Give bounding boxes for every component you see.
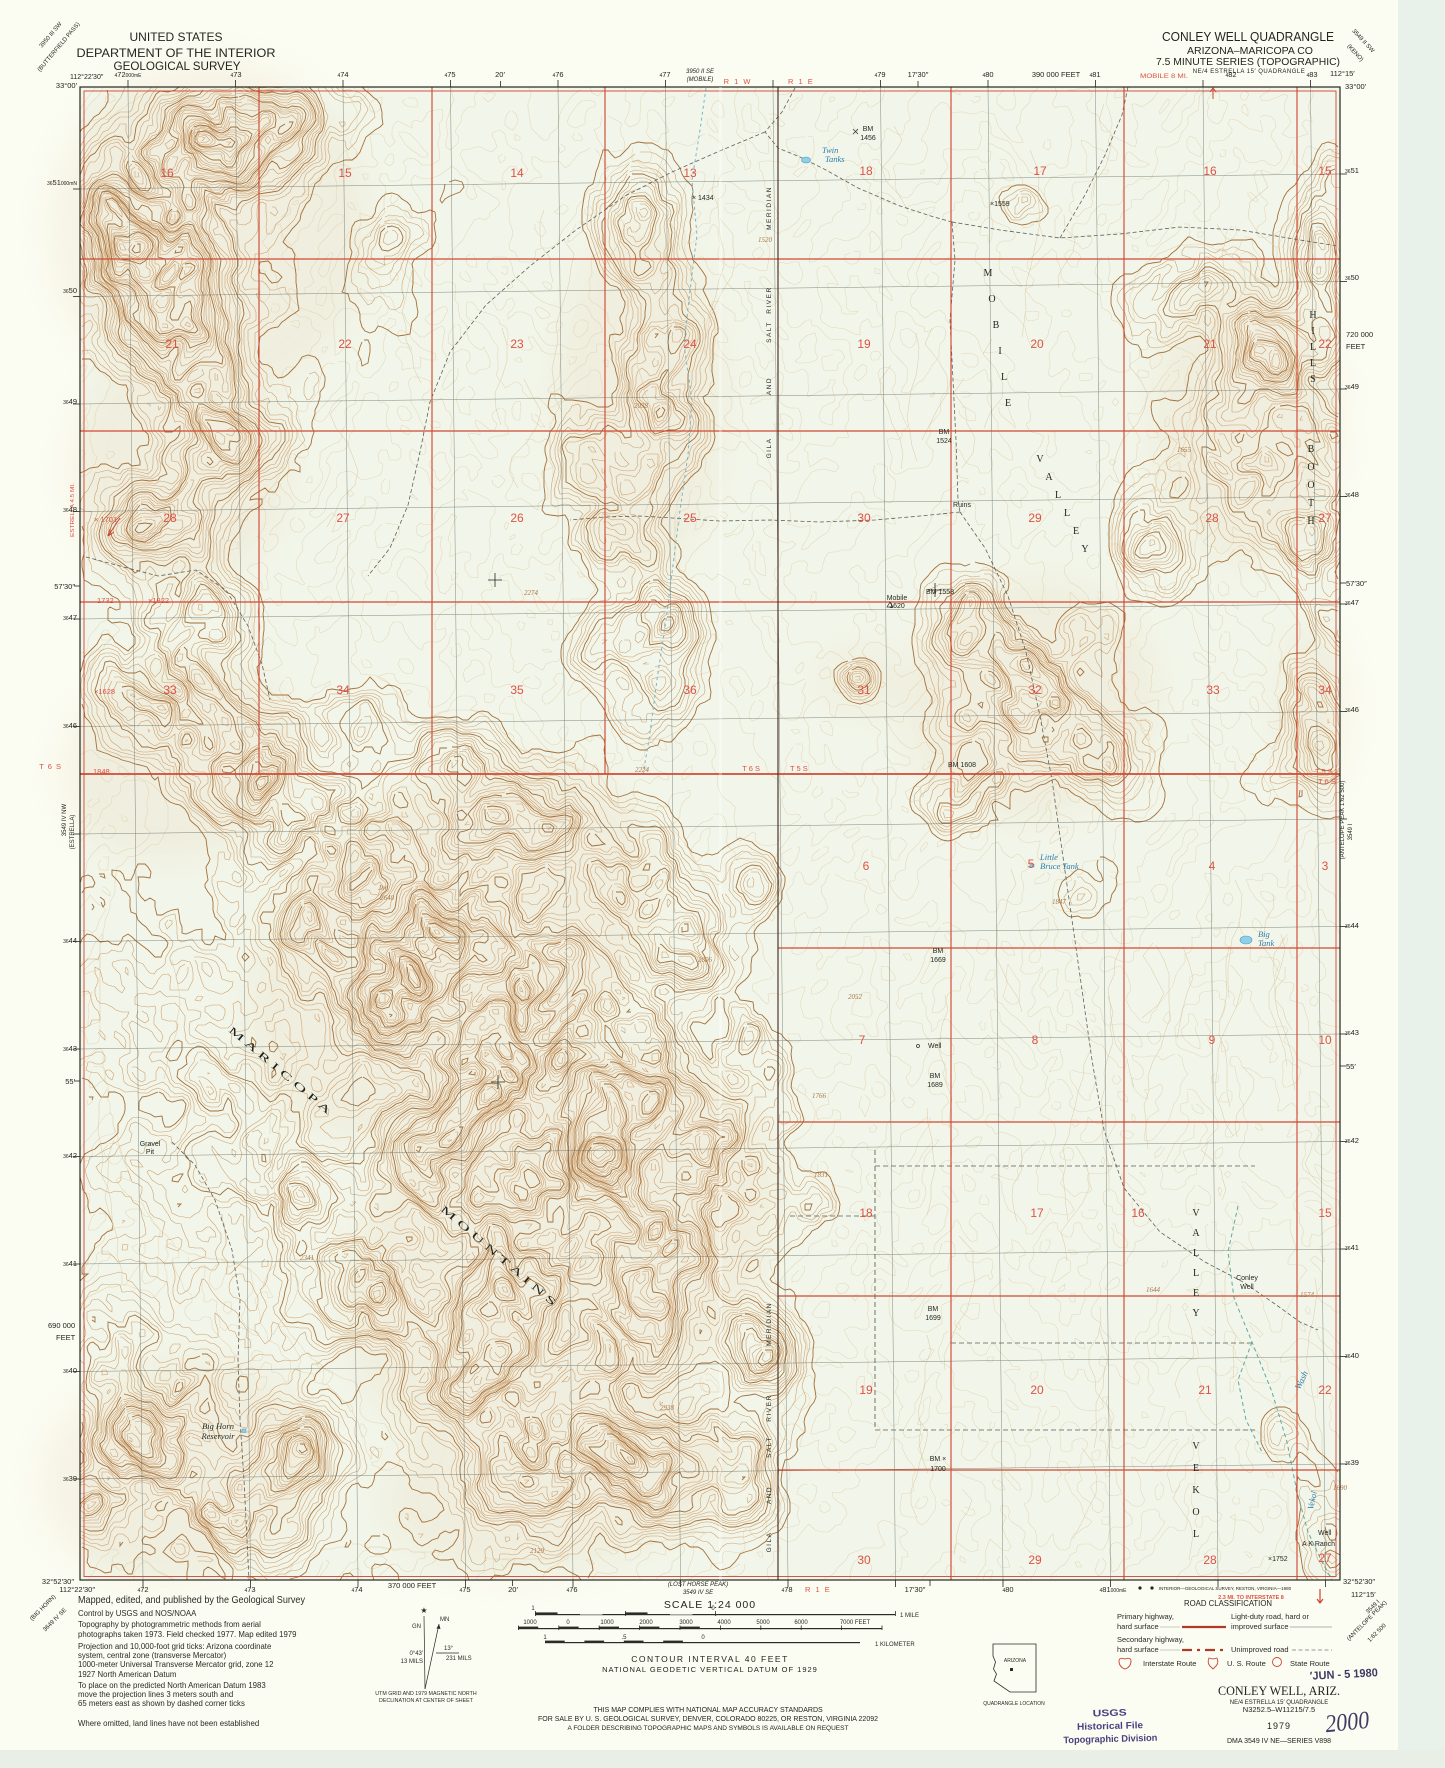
svg-text:32°52′30″: 32°52′30″ bbox=[1343, 1577, 1375, 1586]
svg-text:20: 20 bbox=[1030, 1383, 1044, 1397]
svg-text:24: 24 bbox=[683, 337, 697, 351]
svg-text:U. S. Route: U. S. Route bbox=[1227, 1659, 1266, 1668]
svg-text:M: M bbox=[984, 268, 993, 279]
svg-text:R 1 E: R 1 E bbox=[805, 1585, 831, 1594]
svg-text:SALT: SALT bbox=[766, 1436, 773, 1458]
svg-text:28: 28 bbox=[1205, 511, 1219, 525]
svg-text:5: 5 bbox=[1028, 857, 1035, 871]
svg-text:Reservoir: Reservoir bbox=[200, 1431, 235, 1441]
svg-text:17′30″: 17′30″ bbox=[908, 70, 929, 79]
svg-text:DECLINATION AT CENTER OF SHEET: DECLINATION AT CENTER OF SHEET bbox=[379, 1698, 474, 1704]
svg-text:21: 21 bbox=[165, 337, 179, 351]
svg-text:FOR SALE BY U. S. GEOLOGICAL S: FOR SALE BY U. S. GEOLOGICAL SURVEY, DEN… bbox=[538, 1716, 878, 1723]
svg-text:E: E bbox=[1005, 398, 1011, 409]
svg-text:N3252.5–W11215/7.5: N3252.5–W11215/7.5 bbox=[1243, 1705, 1315, 1714]
svg-text:BM: BM bbox=[928, 1306, 939, 1313]
svg-text:CONTOUR INTERVAL 40 FEET: CONTOUR INTERVAL 40 FEET bbox=[631, 1654, 789, 1664]
svg-text:28: 28 bbox=[163, 511, 177, 525]
svg-text:T 6 S: T 6 S bbox=[39, 762, 62, 771]
svg-text:112°22′30″: 112°22′30″ bbox=[70, 73, 104, 81]
svg-text:BM: BM bbox=[939, 429, 950, 436]
svg-text:(MOBILE): (MOBILE) bbox=[687, 77, 714, 83]
svg-text:1000: 1000 bbox=[523, 1620, 537, 1626]
svg-text:30: 30 bbox=[857, 511, 871, 525]
svg-text:1644: 1644 bbox=[1146, 1286, 1161, 1294]
svg-text:29: 29 bbox=[1028, 511, 1042, 525]
svg-text:55′: 55′ bbox=[1346, 1062, 1356, 1071]
svg-text:To place on the predicted Nort: To place on the predicted North American… bbox=[78, 1681, 266, 1690]
svg-text:improved surface: improved surface bbox=[1231, 1622, 1289, 1631]
svg-text:2640: 2640 bbox=[380, 894, 395, 902]
svg-text:×1559: ×1559 bbox=[990, 201, 1010, 208]
svg-text:L: L bbox=[1193, 1268, 1199, 1279]
svg-text:1689: 1689 bbox=[927, 1082, 943, 1089]
svg-text:BM 1558: BM 1558 bbox=[926, 589, 954, 596]
svg-text:O: O bbox=[1192, 1507, 1199, 1518]
svg-text:32: 32 bbox=[1028, 683, 1042, 697]
svg-text:23: 23 bbox=[510, 337, 524, 351]
svg-text:36: 36 bbox=[683, 683, 697, 697]
svg-text:Interstate Route: Interstate Route bbox=[1143, 1659, 1196, 1668]
svg-text:2806: 2806 bbox=[698, 956, 713, 964]
svg-text:MERIDIAN: MERIDIAN bbox=[766, 1302, 773, 1346]
svg-text:A: A bbox=[1045, 472, 1053, 483]
svg-text:O: O bbox=[1307, 480, 1314, 491]
svg-text:1732: 1732 bbox=[97, 596, 114, 605]
svg-text:2000: 2000 bbox=[1324, 1707, 1371, 1738]
svg-text:21: 21 bbox=[1203, 337, 1217, 351]
svg-text:R 1 W: R 1 W bbox=[724, 77, 752, 86]
svg-text:27: 27 bbox=[336, 511, 350, 525]
svg-text:Well: Well bbox=[1240, 1284, 1254, 1291]
svg-text:T 5 S: T 5 S bbox=[790, 764, 808, 773]
svg-text:9: 9 bbox=[1209, 1033, 1216, 1047]
svg-text:Well: Well bbox=[1318, 1530, 1332, 1537]
svg-text:Bruce Tank: Bruce Tank bbox=[1040, 861, 1079, 871]
svg-text:Pit: Pit bbox=[146, 1149, 154, 1156]
svg-text:BM ×: BM × bbox=[930, 1456, 947, 1463]
svg-text:6000: 6000 bbox=[794, 1620, 808, 1626]
svg-text:Gravel: Gravel bbox=[140, 1141, 161, 1148]
svg-text:L: L bbox=[1310, 358, 1316, 369]
svg-text:MERIDIAN: MERIDIAN bbox=[766, 186, 773, 230]
svg-text:390 000 FEET: 390 000 FEET bbox=[1032, 70, 1081, 79]
svg-text:V: V bbox=[1192, 1208, 1200, 1219]
svg-text:17′30″: 17′30″ bbox=[905, 1585, 926, 1594]
svg-text:GILA: GILA bbox=[766, 438, 773, 459]
svg-text:22: 22 bbox=[338, 337, 352, 351]
svg-text:2938: 2938 bbox=[660, 1404, 675, 1412]
svg-text:1456: 1456 bbox=[860, 135, 876, 142]
svg-text:1000-meter Universal Transvers: 1000-meter Universal Transverse Mercator… bbox=[78, 1660, 273, 1669]
svg-text:O: O bbox=[1307, 462, 1314, 473]
svg-text:33°00′: 33°00′ bbox=[1345, 82, 1367, 91]
svg-text:L: L bbox=[1055, 490, 1061, 501]
svg-text:0°43′: 0°43′ bbox=[409, 1651, 423, 1657]
svg-text:2129: 2129 bbox=[530, 1547, 545, 1555]
svg-text:112°15′: 112°15′ bbox=[1351, 1590, 1376, 1599]
svg-text:QUADRANGLE LOCATION: QUADRANGLE LOCATION bbox=[983, 1701, 1045, 1707]
svg-text:L: L bbox=[1064, 508, 1070, 519]
svg-text:SALT: SALT bbox=[766, 321, 773, 343]
svg-text:7000 FEET: 7000 FEET bbox=[840, 1620, 871, 1626]
svg-text:1848: 1848 bbox=[93, 767, 110, 776]
svg-text:× 1434: × 1434 bbox=[692, 195, 714, 202]
svg-text:Well: Well bbox=[928, 1043, 942, 1050]
svg-text:USGS: USGS bbox=[1093, 1708, 1127, 1720]
svg-text:H: H bbox=[1307, 516, 1314, 527]
svg-text:L: L bbox=[1001, 372, 1007, 383]
svg-text:22: 22 bbox=[1318, 337, 1332, 351]
svg-text:E: E bbox=[1193, 1463, 1199, 1474]
svg-text:photographs taken 1973. Field: photographs taken 1973. Field checked 19… bbox=[78, 1630, 296, 1639]
svg-text:ARIZONA: ARIZONA bbox=[1004, 1658, 1027, 1664]
svg-text:GEOLOGICAL SURVEY: GEOLOGICAL SURVEY bbox=[114, 59, 241, 73]
svg-text:1 MILE: 1 MILE bbox=[900, 1613, 919, 1619]
svg-text:S: S bbox=[1310, 374, 1316, 385]
svg-text:13°: 13° bbox=[444, 1646, 454, 1652]
svg-text:Historical File: Historical File bbox=[1077, 1720, 1143, 1733]
svg-text:28: 28 bbox=[1203, 1553, 1217, 1567]
svg-text:★: ★ bbox=[420, 1606, 427, 1615]
svg-text:33: 33 bbox=[1206, 683, 1220, 697]
svg-text:34: 34 bbox=[1318, 683, 1332, 697]
svg-text:T: T bbox=[1308, 498, 1314, 509]
svg-text:34: 34 bbox=[336, 683, 350, 697]
svg-text:UTM GRID AND 1979 MAGNETIC NOR: UTM GRID AND 1979 MAGNETIC NORTH bbox=[375, 1691, 477, 1697]
svg-text:I: I bbox=[1311, 326, 1314, 337]
svg-text:112°22′30″: 112°22′30″ bbox=[59, 1585, 95, 1594]
svg-text:E: E bbox=[1073, 526, 1079, 537]
svg-text:10: 10 bbox=[1318, 1033, 1332, 1047]
svg-text:17: 17 bbox=[1030, 1206, 1044, 1220]
svg-text:1520: 1520 bbox=[758, 236, 773, 244]
svg-text:GILA: GILA bbox=[766, 1532, 773, 1553]
svg-text:1 KILOMETER: 1 KILOMETER bbox=[875, 1642, 915, 1648]
svg-text:5000: 5000 bbox=[756, 1620, 770, 1626]
svg-text:Tank: Tank bbox=[1258, 938, 1274, 948]
svg-text:65 meters east as shown by das: 65 meters east as shown by dashed corner… bbox=[78, 1699, 245, 1708]
svg-text:7: 7 bbox=[859, 1033, 866, 1047]
svg-text:26: 26 bbox=[510, 511, 524, 525]
svg-text:29: 29 bbox=[1028, 1553, 1042, 1567]
svg-text:UNITED STATES: UNITED STATES bbox=[130, 32, 223, 44]
svg-text:AND: AND bbox=[766, 1486, 773, 1504]
svg-text:4000: 4000 bbox=[717, 1620, 731, 1626]
svg-text:20′: 20′ bbox=[508, 1585, 518, 1594]
svg-text:RIVER: RIVER bbox=[766, 1394, 773, 1421]
svg-text:25: 25 bbox=[683, 511, 697, 525]
svg-text:BM: BM bbox=[863, 126, 874, 133]
svg-text:1847: 1847 bbox=[1052, 898, 1067, 906]
svg-text:1927 North American Datum: 1927 North American Datum bbox=[78, 1670, 176, 1679]
svg-text:Tanks: Tanks bbox=[825, 154, 845, 164]
svg-text:T 5 S: T 5 S bbox=[1315, 767, 1333, 776]
svg-text:17: 17 bbox=[1033, 164, 1047, 178]
svg-text:hard surface: hard surface bbox=[1117, 1622, 1159, 1631]
svg-text:1655: 1655 bbox=[1177, 446, 1192, 454]
svg-text:Where omitted, land lines have: Where omitted, land lines have not been … bbox=[78, 1719, 259, 1728]
svg-text:T 6 S: T 6 S bbox=[1318, 777, 1336, 786]
svg-text:(ANTELOPE PEAK 1:62 500): (ANTELOPE PEAK 1:62 500) bbox=[1340, 781, 1346, 860]
svg-text:20′: 20′ bbox=[495, 70, 505, 79]
svg-text:18: 18 bbox=[859, 1206, 873, 1220]
svg-text:16: 16 bbox=[1203, 164, 1217, 178]
svg-text:13 MILS: 13 MILS bbox=[401, 1659, 423, 1665]
svg-text:THIS MAP COMPLIES WITH NATIONA: THIS MAP COMPLIES WITH NATIONAL MAP ACCU… bbox=[593, 1707, 823, 1714]
svg-text:27: 27 bbox=[1318, 511, 1332, 525]
svg-text:A K Ranch: A K Ranch bbox=[1302, 1541, 1335, 1548]
svg-text:NATIONAL GEODETIC VERTICAL DAT: NATIONAL GEODETIC VERTICAL DATUM OF 1929 bbox=[602, 1665, 818, 1674]
svg-text:21: 21 bbox=[1198, 1383, 1212, 1397]
svg-text:V: V bbox=[1036, 454, 1044, 465]
svg-text:8: 8 bbox=[1032, 1033, 1039, 1047]
svg-text:Secondary highway,: Secondary highway, bbox=[1117, 1635, 1184, 1644]
svg-text:16: 16 bbox=[1131, 1206, 1145, 1220]
svg-text:RIVER: RIVER bbox=[766, 286, 773, 313]
svg-text:BM 1608: BM 1608 bbox=[948, 762, 976, 769]
svg-text:Mobile: Mobile bbox=[887, 595, 908, 602]
svg-text:SCALE 1:24 000: SCALE 1:24 000 bbox=[664, 1599, 756, 1611]
svg-text:hard surface: hard surface bbox=[1117, 1645, 1159, 1654]
svg-text:Topography by photogrammetric: Topography by photogrammetric methods fr… bbox=[78, 1620, 261, 1629]
svg-text:20: 20 bbox=[1030, 337, 1044, 351]
svg-text:3: 3 bbox=[1322, 859, 1329, 873]
svg-text:×1752: ×1752 bbox=[1268, 1556, 1288, 1563]
svg-text:2000: 2000 bbox=[639, 1620, 653, 1626]
svg-text:15: 15 bbox=[1318, 1206, 1332, 1220]
svg-text:1000: 1000 bbox=[600, 1620, 614, 1626]
svg-text:(ESTRELLA): (ESTRELLA) bbox=[70, 815, 76, 850]
svg-text:18: 18 bbox=[859, 164, 873, 178]
svg-text:1524: 1524 bbox=[936, 438, 952, 445]
svg-text:MOBILE 8 MI.: MOBILE 8 MI. bbox=[1140, 73, 1188, 80]
svg-text:B: B bbox=[993, 320, 1000, 331]
svg-text:231 MILS: 231 MILS bbox=[446, 1656, 472, 1662]
svg-text:7.5 MINUTE SERIES (TOPOGRAPHIC: 7.5 MINUTE SERIES (TOPOGRAPHIC) bbox=[1156, 57, 1340, 68]
svg-text:L: L bbox=[1310, 342, 1316, 353]
svg-text:720 000: 720 000 bbox=[1346, 330, 1373, 339]
svg-text:× 1701: × 1701 bbox=[94, 515, 117, 524]
svg-text:4: 4 bbox=[1209, 859, 1216, 873]
svg-text:DEPARTMENT OF THE INTERIOR: DEPARTMENT OF THE INTERIOR bbox=[77, 46, 276, 60]
svg-text:Conley: Conley bbox=[1236, 1275, 1258, 1282]
svg-text:ARIZONA–MARICOPA CO: ARIZONA–MARICOPA CO bbox=[1187, 46, 1313, 57]
svg-text:move the projection lines 3 me: move the projection lines 3 meters south… bbox=[78, 1690, 233, 1699]
svg-text:30: 30 bbox=[857, 1553, 871, 1567]
svg-text:2224: 2224 bbox=[635, 766, 650, 774]
svg-text:57′30″: 57′30″ bbox=[1346, 579, 1367, 588]
svg-text:15: 15 bbox=[338, 166, 352, 180]
svg-text:L: L bbox=[1193, 1248, 1199, 1259]
svg-text:A: A bbox=[1192, 1228, 1200, 1239]
svg-text:14: 14 bbox=[510, 166, 524, 180]
svg-text:1690: 1690 bbox=[1333, 1484, 1348, 1492]
svg-text:INTERIOR—GEOLOGICAL SURVEY, RE: INTERIOR—GEOLOGICAL SURVEY, RESTON, VIRG… bbox=[1159, 1586, 1292, 1591]
svg-text:Control by USGS and NOS/NOAA: Control by USGS and NOS/NOAA bbox=[78, 1609, 197, 1618]
svg-text:2038: 2038 bbox=[634, 402, 649, 410]
svg-text:16: 16 bbox=[160, 166, 174, 180]
svg-text:T 6 S: T 6 S bbox=[742, 764, 760, 773]
svg-text:A FOLDER DESCRIBING TOPOGRAPHI: A FOLDER DESCRIBING TOPOGRAPHIC MAPS AND… bbox=[568, 1725, 849, 1732]
svg-text:31: 31 bbox=[857, 683, 871, 697]
svg-text:BM: BM bbox=[933, 948, 944, 955]
svg-text:3950 II SE: 3950 II SE bbox=[686, 69, 715, 75]
svg-text:370 000 FEET: 370 000 FEET bbox=[388, 1581, 437, 1590]
svg-text:33°00′: 33°00′ bbox=[56, 81, 78, 90]
svg-text:6: 6 bbox=[863, 859, 870, 873]
svg-text:V: V bbox=[1192, 1441, 1200, 1452]
svg-text:55′: 55′ bbox=[65, 1077, 75, 1086]
svg-text:27: 27 bbox=[1318, 1551, 1332, 1565]
svg-text:3549 IV SE: 3549 IV SE bbox=[683, 1590, 714, 1596]
svg-text:CONLEY WELL QUADRANGLE: CONLEY WELL QUADRANGLE bbox=[1162, 30, 1334, 44]
svg-text:19: 19 bbox=[859, 1383, 873, 1397]
svg-text:1700: 1700 bbox=[930, 1466, 946, 1473]
svg-text:MN: MN bbox=[440, 1617, 449, 1623]
svg-text:2274: 2274 bbox=[524, 589, 539, 597]
svg-text:Jim: Jim bbox=[378, 884, 388, 892]
svg-text:Primary highway,: Primary highway, bbox=[1117, 1612, 1174, 1621]
svg-text:15: 15 bbox=[1318, 164, 1332, 178]
svg-text:Ruins: Ruins bbox=[953, 502, 971, 509]
svg-text:Mapped, edited, and published: Mapped, edited, and published by the Geo… bbox=[78, 1595, 305, 1606]
svg-text:E: E bbox=[1193, 1288, 1199, 1299]
svg-text:Unimproved road: Unimproved road bbox=[1231, 1645, 1289, 1654]
svg-text:(LOST HORSE PEAK): (LOST HORSE PEAK) bbox=[668, 1582, 728, 1588]
svg-text:×1628: ×1628 bbox=[94, 687, 115, 696]
svg-text:BM: BM bbox=[930, 1073, 941, 1080]
svg-text:×1822: ×1822 bbox=[148, 596, 169, 605]
svg-text:R 1 E: R 1 E bbox=[788, 77, 814, 86]
svg-text:CONLEY WELL, ARIZ.: CONLEY WELL, ARIZ. bbox=[1218, 1684, 1340, 1698]
svg-text:112°15′: 112°15′ bbox=[1330, 69, 1355, 78]
svg-text:22: 22 bbox=[1318, 1383, 1332, 1397]
svg-text:Projection and 10,000-foot gri: Projection and 10,000-foot grid ticks: A… bbox=[78, 1642, 271, 1651]
svg-text:1699: 1699 bbox=[925, 1315, 941, 1322]
svg-text:35: 35 bbox=[510, 683, 524, 697]
svg-text:19: 19 bbox=[857, 337, 871, 351]
svg-text:Y: Y bbox=[1081, 544, 1088, 555]
svg-text:Y: Y bbox=[1192, 1308, 1199, 1319]
svg-text:57′30″: 57′30″ bbox=[54, 582, 75, 591]
svg-text:3000: 3000 bbox=[679, 1620, 693, 1626]
svg-text:.5: .5 bbox=[621, 1635, 627, 1641]
svg-text:system, central zone (transver: system, central zone (transverse Mercato… bbox=[78, 1651, 227, 1660]
svg-text:FEET: FEET bbox=[56, 1333, 76, 1342]
svg-text:690 000: 690 000 bbox=[48, 1321, 75, 1330]
svg-text:I: I bbox=[998, 346, 1001, 357]
svg-text:DMA 3549 IV NE—SERIES V898: DMA 3549 IV NE—SERIES V898 bbox=[1227, 1738, 1331, 1745]
svg-text:ROAD CLASSIFICATION: ROAD CLASSIFICATION bbox=[1184, 1599, 1272, 1608]
svg-text:State Route: State Route bbox=[1290, 1659, 1330, 1668]
svg-text:H: H bbox=[1309, 310, 1316, 321]
svg-text:GN: GN bbox=[412, 1624, 421, 1630]
svg-text:3549 I: 3549 I bbox=[1348, 823, 1354, 840]
svg-text:O: O bbox=[988, 294, 995, 305]
svg-text:1831: 1831 bbox=[814, 1171, 828, 1179]
svg-text:NE/4 ESTRELLA 15′ QUADRANGLE: NE/4 ESTRELLA 15′ QUADRANGLE bbox=[1193, 69, 1306, 75]
svg-text:L: L bbox=[1193, 1529, 1199, 1540]
svg-text:1979: 1979 bbox=[1267, 1721, 1291, 1731]
svg-text:2341: 2341 bbox=[300, 1254, 314, 1262]
svg-text:FEET: FEET bbox=[1346, 342, 1366, 351]
svg-text:3549 IV NW: 3549 IV NW bbox=[62, 803, 68, 836]
svg-text:2052: 2052 bbox=[848, 993, 863, 1001]
svg-text:13: 13 bbox=[683, 166, 697, 180]
svg-text:Light-duty road, hard or: Light-duty road, hard or bbox=[1231, 1612, 1309, 1621]
svg-text:1669: 1669 bbox=[930, 957, 946, 964]
svg-text:B: B bbox=[1308, 444, 1315, 455]
svg-text:AND: AND bbox=[766, 377, 773, 395]
svg-text:1766: 1766 bbox=[812, 1092, 827, 1100]
svg-text:1574: 1574 bbox=[1300, 1291, 1315, 1299]
svg-text:K: K bbox=[1192, 1485, 1200, 1496]
svg-text:Big Horn: Big Horn bbox=[202, 1421, 234, 1431]
svg-text:33: 33 bbox=[163, 683, 177, 697]
